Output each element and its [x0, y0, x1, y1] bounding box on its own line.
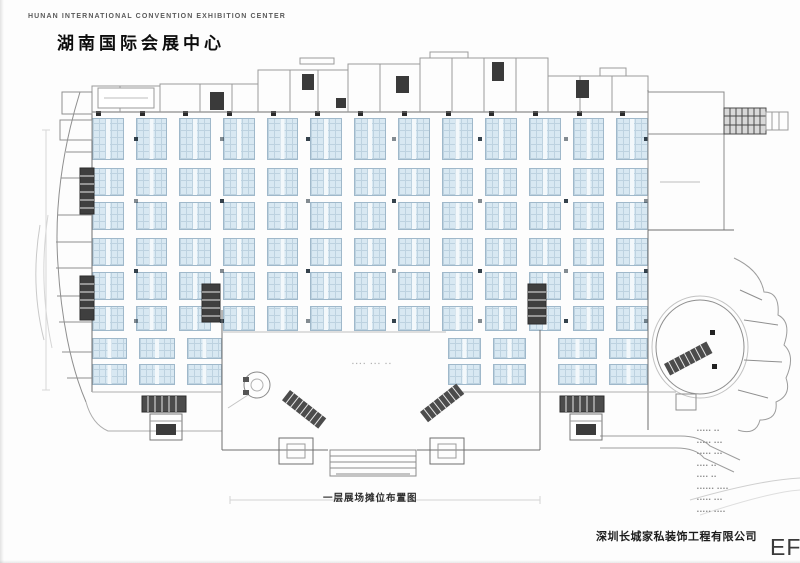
note-line: ▪▪▪▪ ▪▪	[697, 461, 797, 473]
note-line: ▪▪▪▪▪ ▪▪	[697, 426, 797, 438]
stairs-lower-right	[560, 396, 604, 440]
right-wing	[648, 90, 734, 430]
company-name: 深圳长城家私装饰工程有限公司	[596, 528, 757, 544]
top-rooms-dark-blocks	[210, 62, 589, 110]
floorplan-page: HUNAN INTERNATIONAL CONVENTION EXHIBITIO…	[0, 0, 800, 563]
lobby	[42, 130, 800, 515]
note-line: ▪▪▪▪▪ ▪▪▪	[697, 495, 797, 507]
left-wing	[36, 92, 222, 431]
top-rooms-band	[92, 52, 648, 118]
hatched-core-blocks	[202, 284, 546, 324]
page-title: 湖南国际会展中心	[57, 29, 225, 54]
escalator-left	[282, 390, 326, 429]
rotunda	[652, 258, 791, 432]
drawing-caption: 一层展场摊位布置图	[323, 490, 418, 504]
watermark-text: EF	[770, 534, 800, 561]
stairs-lower-left	[142, 396, 186, 440]
escalator-right	[420, 384, 464, 423]
stairs-top-right	[724, 108, 788, 134]
note-line: ▪▪▪▪▪ ▪▪▪	[697, 438, 797, 450]
note-line: ▪▪▪▪▪ ▪▪▪	[697, 449, 797, 461]
note-line: ▪▪▪▪ ▪▪	[697, 472, 797, 484]
title-english: HUNAN INTERNATIONAL CONVENTION EXHIBITIO…	[28, 13, 286, 20]
floorplan-linework	[0, 0, 800, 563]
note-line: ▪▪▪▪▪ ▪▪▪▪	[697, 507, 797, 519]
note-line: ▪▪▪▪▪▪ ▪▪▪▪	[697, 484, 797, 496]
escalator-rotunda	[664, 341, 712, 375]
notes-block: ▪▪▪▪▪ ▪▪▪▪▪▪▪ ▪▪▪▪▪▪▪▪ ▪▪▪▪▪▪▪ ▪▪▪▪▪▪ ▪▪…	[697, 426, 797, 518]
lobby-annotation: ▪▪▪▪ ▪▪▪ ▪▪	[352, 361, 393, 367]
